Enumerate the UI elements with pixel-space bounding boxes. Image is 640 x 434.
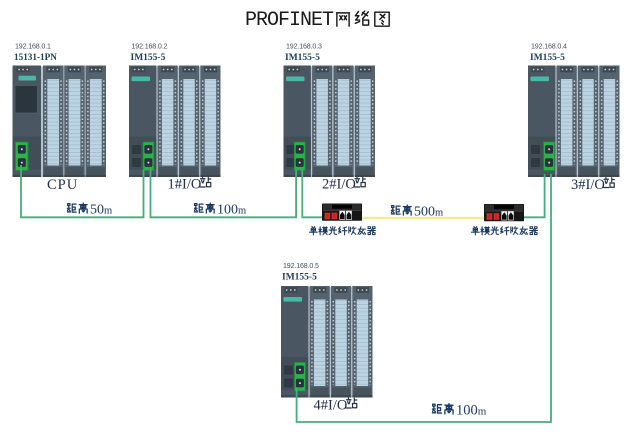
svg-text:1#I/O: 1#I/O <box>168 177 202 193</box>
svg-text:CPU: CPU <box>47 177 78 193</box>
svg-text:2#I/O: 2#I/O <box>322 177 356 193</box>
svg-text:192.168.0.2: 192.168.0.2 <box>132 43 168 51</box>
svg-text:3#I/O: 3#I/O <box>571 177 605 193</box>
svg-text:4#I/O: 4#I/O <box>314 398 348 414</box>
svg-text:IM155-5: IM155-5 <box>530 53 565 63</box>
svg-text:192.168.0.1: 192.168.0.1 <box>15 43 51 51</box>
svg-text:50m: 50m <box>90 203 112 218</box>
svg-text:192.168.0.5: 192.168.0.5 <box>283 262 319 270</box>
svg-text:100m: 100m <box>456 403 487 419</box>
svg-text:PROFINET: PROFINET <box>245 9 334 32</box>
svg-text:IM155-5: IM155-5 <box>285 53 320 63</box>
svg-text:100m: 100m <box>217 203 246 218</box>
svg-text:192.168.0.4: 192.168.0.4 <box>531 43 567 51</box>
svg-text:IM155-5: IM155-5 <box>282 273 317 283</box>
svg-text:IM155-5: IM155-5 <box>131 53 166 63</box>
svg-text:15131-1PN: 15131-1PN <box>14 52 57 62</box>
svg-text:192.168.0.3: 192.168.0.3 <box>286 43 322 51</box>
svg-text:500m: 500m <box>414 205 443 220</box>
